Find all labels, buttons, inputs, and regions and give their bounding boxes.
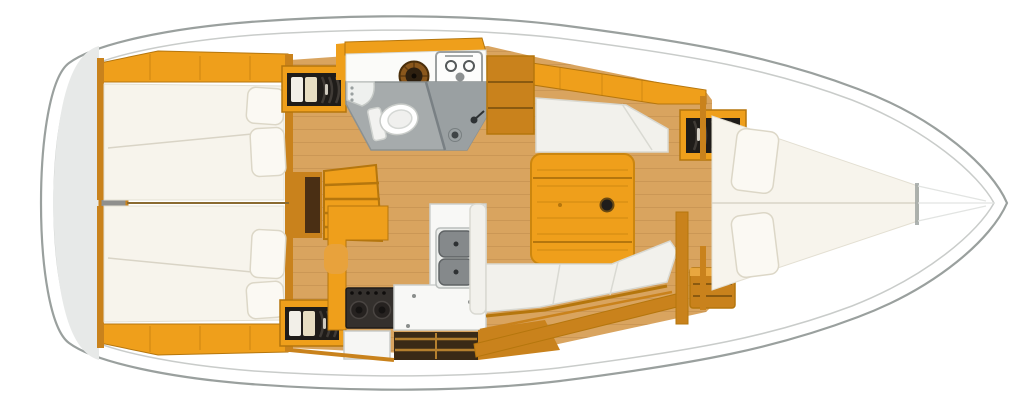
floor-drain: [452, 132, 459, 139]
hanger-glint: [697, 128, 700, 141]
boat-floor-plan: [0, 0, 1024, 406]
floor-plan-svg: [0, 0, 1024, 406]
cup-recess: [601, 199, 614, 212]
two-burner-unit: [436, 52, 482, 86]
pillow: [250, 127, 286, 177]
folded-shirt: [289, 311, 301, 336]
pillow: [730, 212, 779, 279]
fwd-bulkhead-bottom: [700, 246, 706, 310]
hanger-glint: [323, 318, 326, 329]
galley-lockers: [394, 332, 478, 360]
dining-table: [531, 154, 634, 264]
folded-shirt: [303, 311, 315, 336]
bulkhead-column: [676, 212, 688, 324]
gimballed-stove: [346, 288, 396, 328]
bulkhead-left: [97, 206, 104, 348]
galley-seat: [324, 244, 348, 274]
side-cabinet: [487, 56, 534, 134]
berth-end-trim: [915, 183, 919, 225]
folded-shirt: [305, 77, 317, 102]
settee-back-cushion: [470, 204, 486, 314]
fwd-bulkhead-top: [700, 96, 706, 160]
pillow: [730, 128, 779, 195]
bulkhead-left: [97, 58, 104, 200]
folded-shirt: [291, 77, 303, 102]
engine-box-inset: [305, 177, 320, 233]
hanger-glint: [325, 84, 328, 95]
pillow: [250, 229, 286, 279]
table-latch: [558, 203, 562, 207]
pillow: [246, 87, 285, 125]
